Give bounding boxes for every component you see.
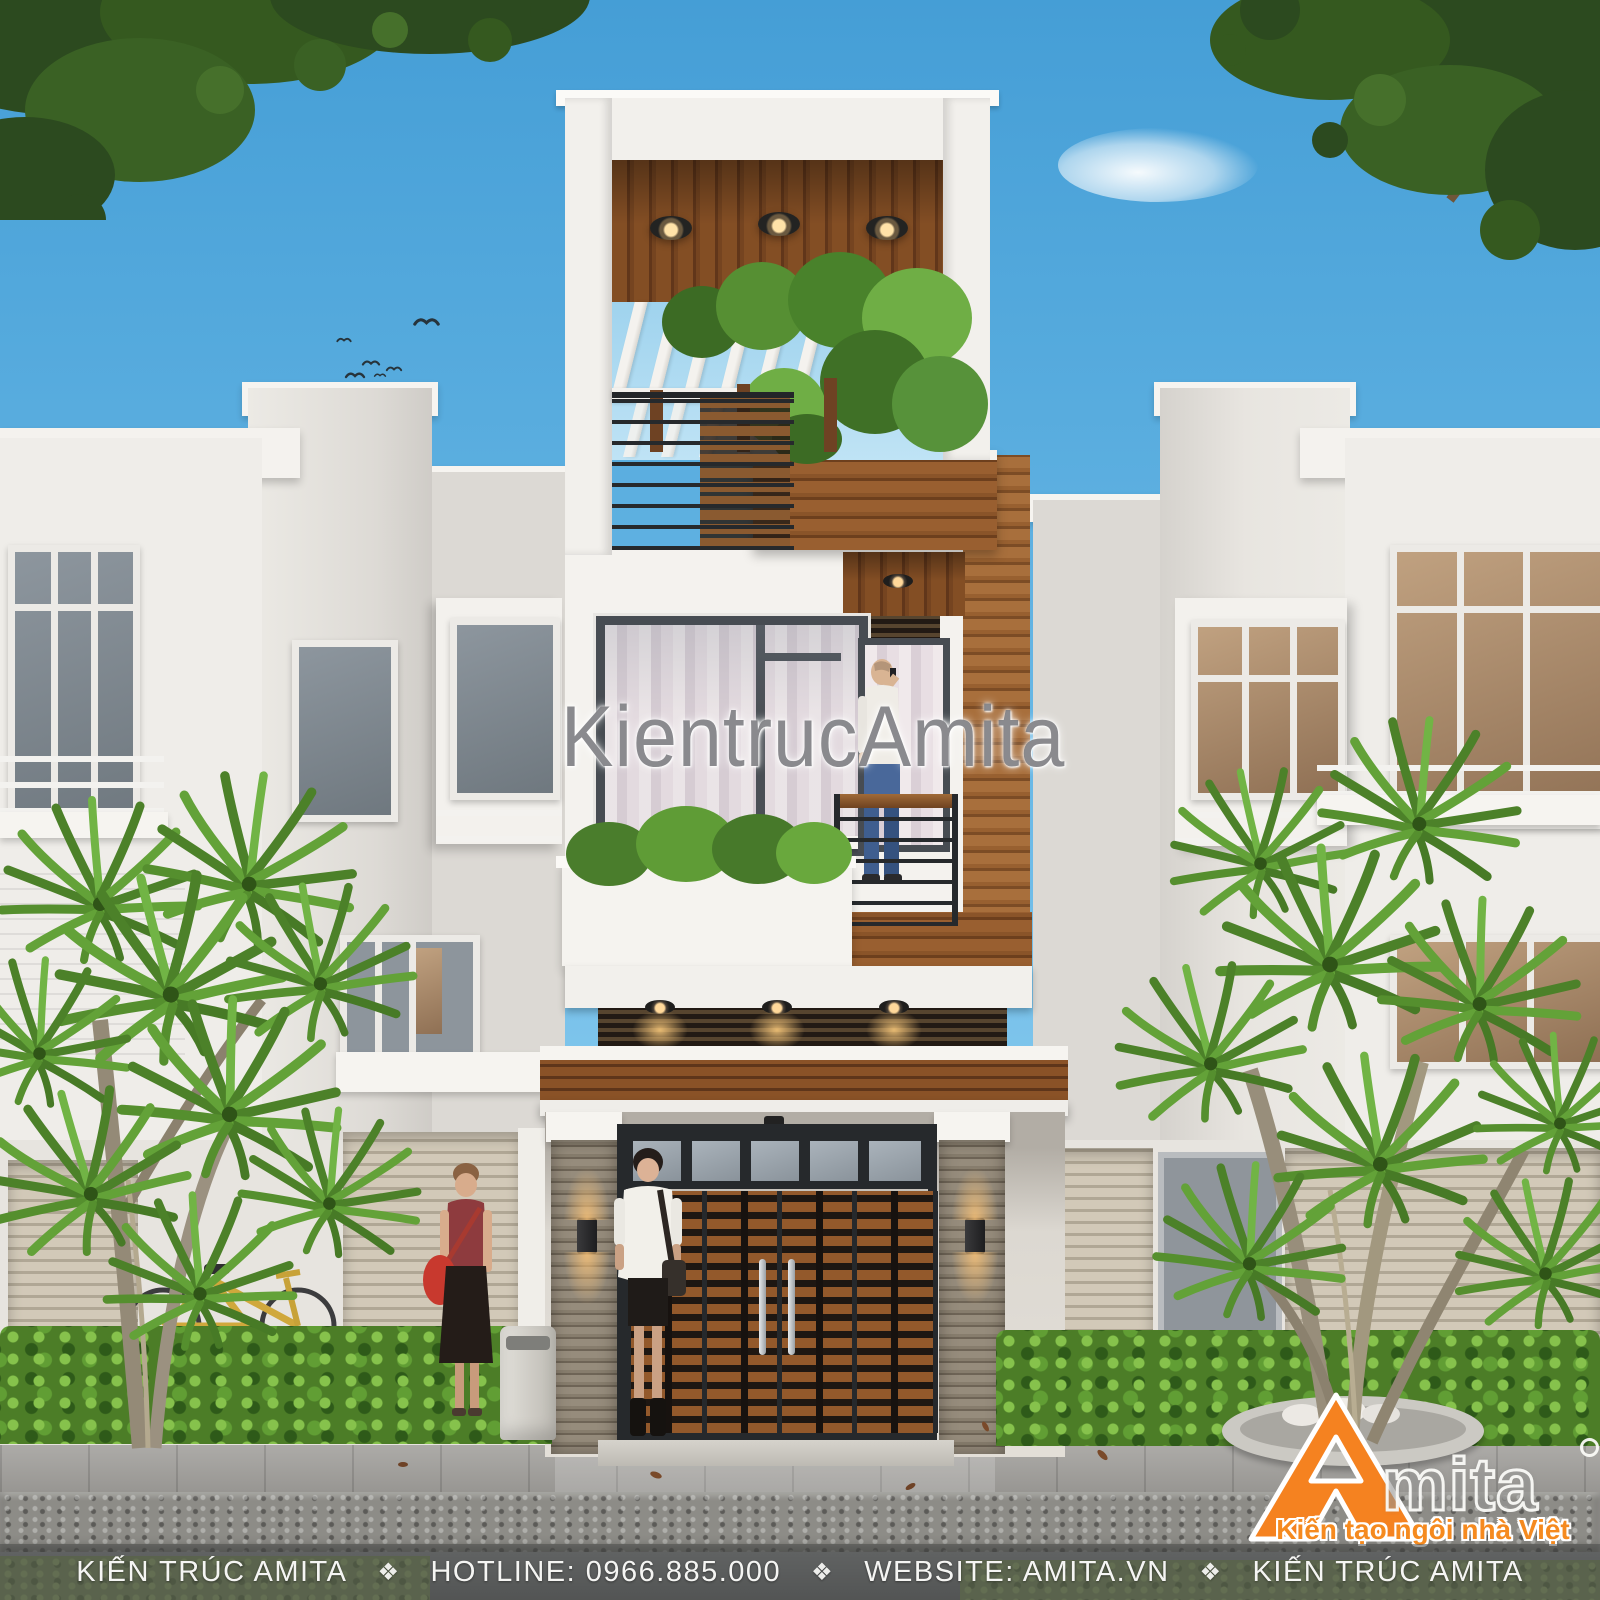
footer-hotline: HOTLINE: 0966.885.000 (430, 1556, 781, 1589)
architectural-render-scene: KientrucAmita mita Kiến tạo ngôi nhà Việ… (0, 0, 1600, 1600)
amita-logo: mita Kiến tạo ngôi nhà Việt (1248, 1392, 1600, 1560)
registered-mark-icon (1580, 1438, 1599, 1457)
fallen-leaf (398, 1462, 408, 1467)
diamond-separator-icon: ❖ (1200, 1558, 1223, 1587)
palm-trees (0, 0, 1600, 1600)
footer-brand: KIẾN TRÚC AMITA (76, 1556, 347, 1589)
footer-website: WEBSITE: AMITA.VN (864, 1556, 1169, 1589)
diamond-separator-icon: ❖ (811, 1558, 834, 1587)
watermark: KientrucAmita (561, 688, 1039, 787)
footer-info-bar: KIẾN TRÚC AMITA ❖ HOTLINE: 0966.885.000 … (0, 1544, 1600, 1600)
footer-brand-2: KIẾN TRÚC AMITA (1253, 1556, 1524, 1589)
pedestrian-woman-white (598, 1142, 698, 1440)
diamond-separator-icon: ❖ (377, 1558, 400, 1587)
pedestrian-woman-red (418, 1158, 513, 1428)
amita-tagline: Kiến tạo ngôi nhà Việt (1258, 1514, 1588, 1546)
